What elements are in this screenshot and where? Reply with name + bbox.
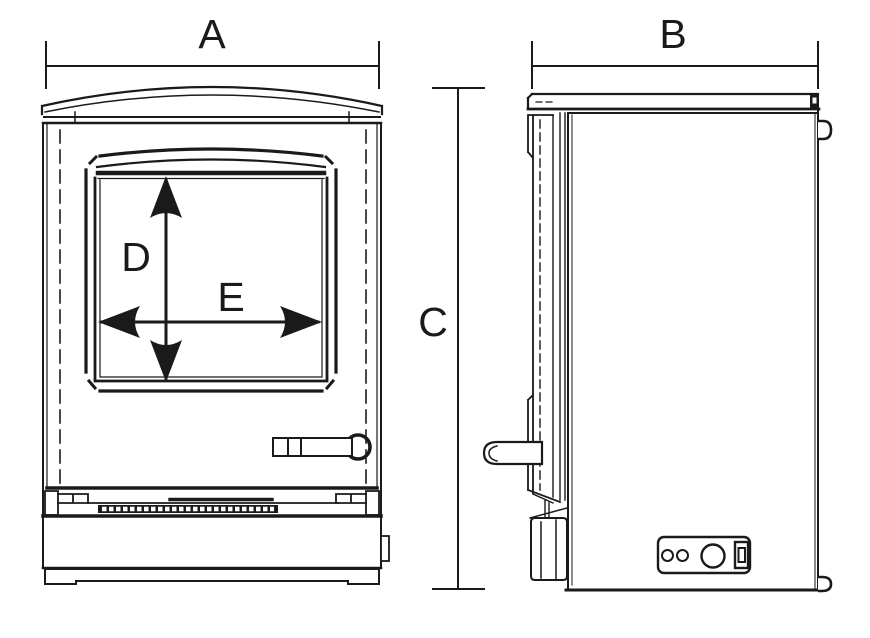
- side-lid-end-notch: [813, 98, 817, 104]
- side-view: B: [484, 11, 831, 591]
- side-lid-top: [528, 94, 818, 108]
- side-body-thin-edges: [572, 113, 815, 588]
- stove-top-lid: [42, 87, 382, 123]
- window-measure-arrows: D E: [98, 176, 322, 382]
- lid-top-arc: [42, 87, 382, 114]
- side-rear-foot: [818, 577, 831, 591]
- control-panel: [658, 537, 750, 573]
- plinth-and-feet: [45, 569, 379, 584]
- vent-grille: [43, 488, 381, 516]
- door-handle: [273, 435, 370, 459]
- dimension-label-c: C: [418, 299, 448, 345]
- dimension-label-e: E: [217, 274, 244, 320]
- side-body: [566, 109, 831, 591]
- stove-dimension-diagram: A D E: [0, 0, 870, 638]
- dimension-label-a: A: [198, 11, 226, 57]
- side-body-edges: [568, 109, 818, 590]
- dimension-label-d: D: [121, 234, 151, 280]
- dimension-c: C: [418, 88, 484, 589]
- front-base: [43, 536, 389, 584]
- dimension-label-b: B: [659, 11, 686, 57]
- lower-hinge-block: [531, 518, 567, 580]
- side-top-lid: [528, 94, 819, 109]
- dimension-b: B: [532, 11, 818, 88]
- grille-right-clip: [366, 491, 379, 515]
- body-hidden-edges: [60, 130, 366, 486]
- front-view: A D E: [42, 11, 389, 584]
- window-glass-arc: [97, 160, 325, 168]
- dimension-a: A: [46, 11, 379, 88]
- handle-bar: [273, 438, 352, 456]
- side-handle: [484, 442, 542, 464]
- side-door-edge: [484, 113, 567, 580]
- base-side-tab: [381, 536, 389, 561]
- side-rear-knob: [818, 121, 831, 139]
- grille-left-clip: [45, 491, 58, 515]
